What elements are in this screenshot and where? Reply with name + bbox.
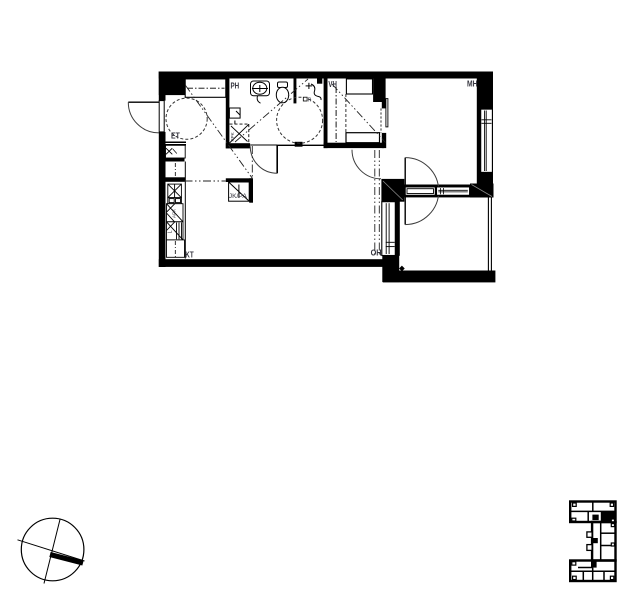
svg-text:PH: PH (231, 81, 240, 90)
svg-text:L: L (168, 231, 174, 234)
svg-text:JK/PA: JK/PA (229, 194, 247, 200)
svg-text:APK: APK (172, 208, 177, 218)
svg-text:OH: OH (371, 249, 382, 258)
svg-text:KT: KT (185, 250, 193, 259)
svg-text:PPK: PPK (230, 131, 235, 141)
svg-text:ET: ET (171, 132, 180, 141)
svg-text:R: R (308, 97, 312, 103)
svg-text:MH: MH (467, 80, 478, 89)
svg-text:VH: VH (328, 80, 337, 89)
